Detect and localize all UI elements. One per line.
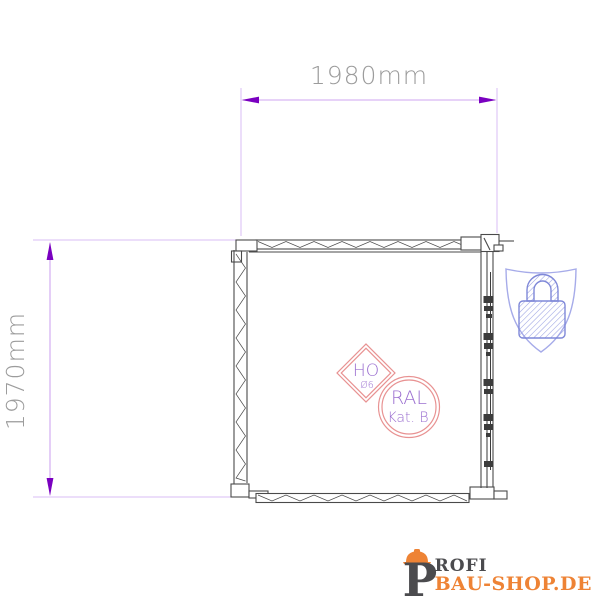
diamond-stamp-number: Ø6 <box>360 380 374 391</box>
diamond-stamp-code: HO <box>353 361 379 381</box>
left-stile-truss-pattern <box>236 254 246 481</box>
bottom-right-foot <box>470 487 494 499</box>
left-stile <box>231 250 268 498</box>
top-rail <box>232 240 482 262</box>
width-dimension-label: 1980mm <box>310 61 428 90</box>
left-foot <box>231 484 249 497</box>
profi-bau-shop-logo: P ROFI BAU-SHOP.DE <box>403 551 592 595</box>
bottom-rail <box>256 487 507 503</box>
locking-hardware <box>484 272 494 470</box>
logo-initial: P <box>403 557 438 603</box>
ral-stamp-category: Kat. B <box>387 410 428 426</box>
padlock-body-icon <box>519 301 565 338</box>
logo-initial-block: P <box>403 551 433 595</box>
width-dimension: 1980mm <box>241 61 497 236</box>
arrow-down-icon <box>47 478 54 496</box>
logo-domain: BAU-SHOP.DE <box>435 575 592 594</box>
top-left-corner-bracket <box>236 240 257 251</box>
height-dimension-label: 1970mm <box>1 312 30 430</box>
arrow-up-icon <box>47 242 54 260</box>
technical-drawing: 1980mm 1970mm <box>0 0 600 600</box>
arrow-left-icon <box>242 97 260 104</box>
top-right-bracket <box>461 235 514 252</box>
arrow-right-icon <box>479 97 497 104</box>
height-dimension: 1970mm <box>1 240 247 497</box>
padlock-shackle-icon <box>527 275 558 302</box>
right-stile <box>481 252 494 488</box>
certification-stamps: HO Ø6 RAL Kat. B <box>337 344 439 437</box>
ral-stamp-title: RAL <box>391 387 427 409</box>
ral-stamp: RAL Kat. B <box>379 377 440 438</box>
security-badge <box>506 269 576 352</box>
logo-wordmark: ROFI BAU-SHOP.DE <box>435 558 592 595</box>
